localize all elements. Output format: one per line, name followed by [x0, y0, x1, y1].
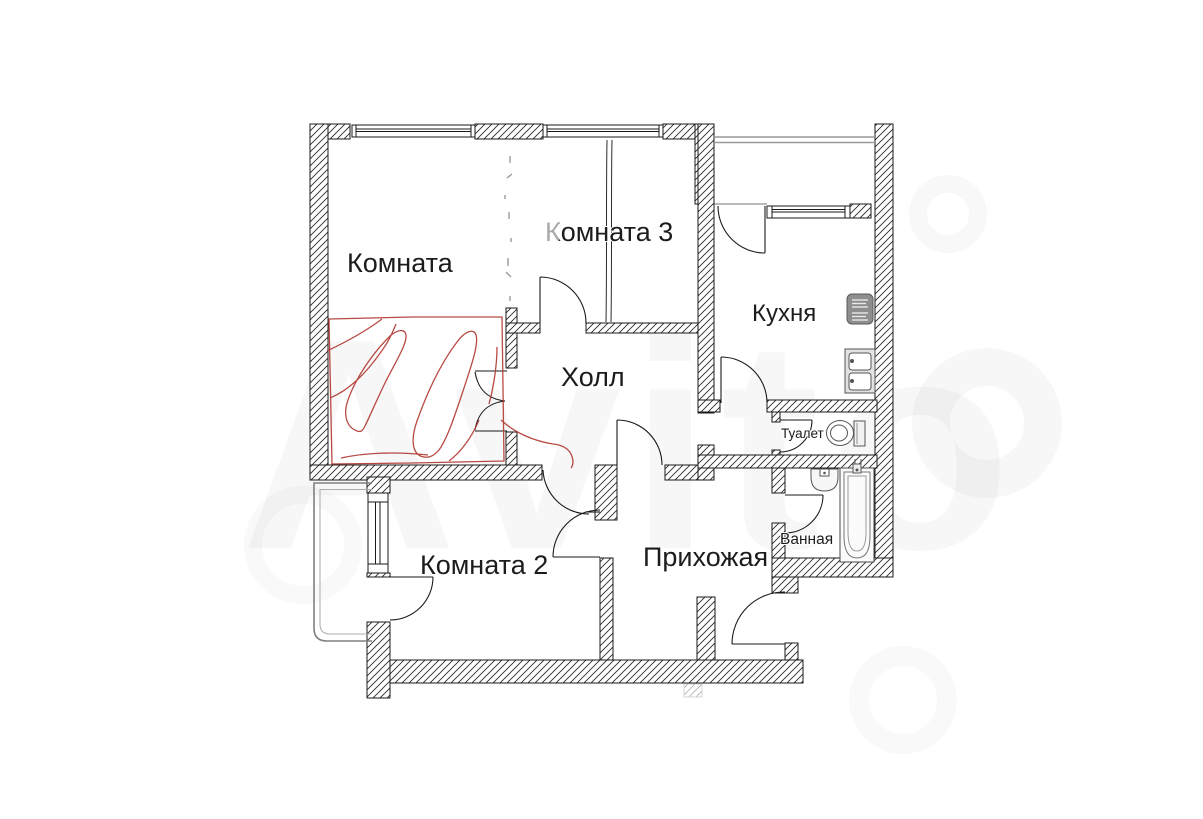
wall — [475, 124, 543, 139]
label-kitchen: Кухня — [752, 300, 816, 327]
window-room3 — [543, 125, 663, 137]
label-hall: Холл — [561, 362, 625, 392]
wall — [772, 558, 893, 577]
wall — [772, 412, 780, 422]
label-room3: Комната 3 — [545, 217, 673, 247]
toilet-icon — [827, 421, 866, 447]
wall — [367, 573, 390, 577]
wall — [697, 597, 715, 660]
wall — [767, 400, 877, 412]
watermark-ring-icon — [918, 184, 978, 244]
wall — [772, 577, 798, 593]
loggia-top — [714, 144, 875, 202]
label-room1: Комната — [347, 248, 454, 278]
wall — [375, 660, 803, 683]
wall — [698, 400, 720, 412]
window-room2 — [368, 493, 388, 573]
wall — [698, 124, 714, 413]
wall — [506, 323, 540, 333]
wall — [310, 465, 542, 480]
watermark-ring-icon — [859, 656, 947, 744]
floor-plan-page: Avito — [0, 0, 1203, 819]
wall — [367, 622, 390, 698]
bathtub-icon — [840, 459, 874, 562]
bath-sink-icon — [811, 469, 838, 491]
label-erase-smudge — [542, 222, 559, 244]
wall — [586, 323, 698, 333]
label-entry: Прихожая — [643, 542, 768, 572]
wall — [600, 558, 613, 660]
loggia-glazing — [714, 137, 875, 143]
label-room2: Комната 2 — [420, 550, 548, 580]
wall-step — [684, 684, 702, 697]
wall — [506, 308, 517, 323]
wall — [772, 450, 780, 455]
wall — [506, 333, 517, 368]
wall — [772, 468, 785, 493]
wall — [698, 455, 877, 468]
kitchen-sink-icon — [845, 349, 875, 393]
wall — [875, 124, 893, 577]
window-kitchen — [714, 204, 850, 218]
floor-plan-canvas: Avito — [0, 0, 1203, 819]
wall — [506, 432, 517, 465]
wall — [665, 465, 698, 480]
wall — [310, 124, 328, 480]
label-toilet: Туалет — [781, 426, 824, 441]
wall — [663, 124, 698, 139]
stove-icon — [847, 294, 873, 324]
wall — [367, 477, 390, 493]
door-kitchen-balcony — [718, 206, 765, 253]
window-room1 — [352, 125, 475, 137]
wall — [850, 204, 871, 218]
label-bathroom: Ванная — [780, 531, 833, 548]
